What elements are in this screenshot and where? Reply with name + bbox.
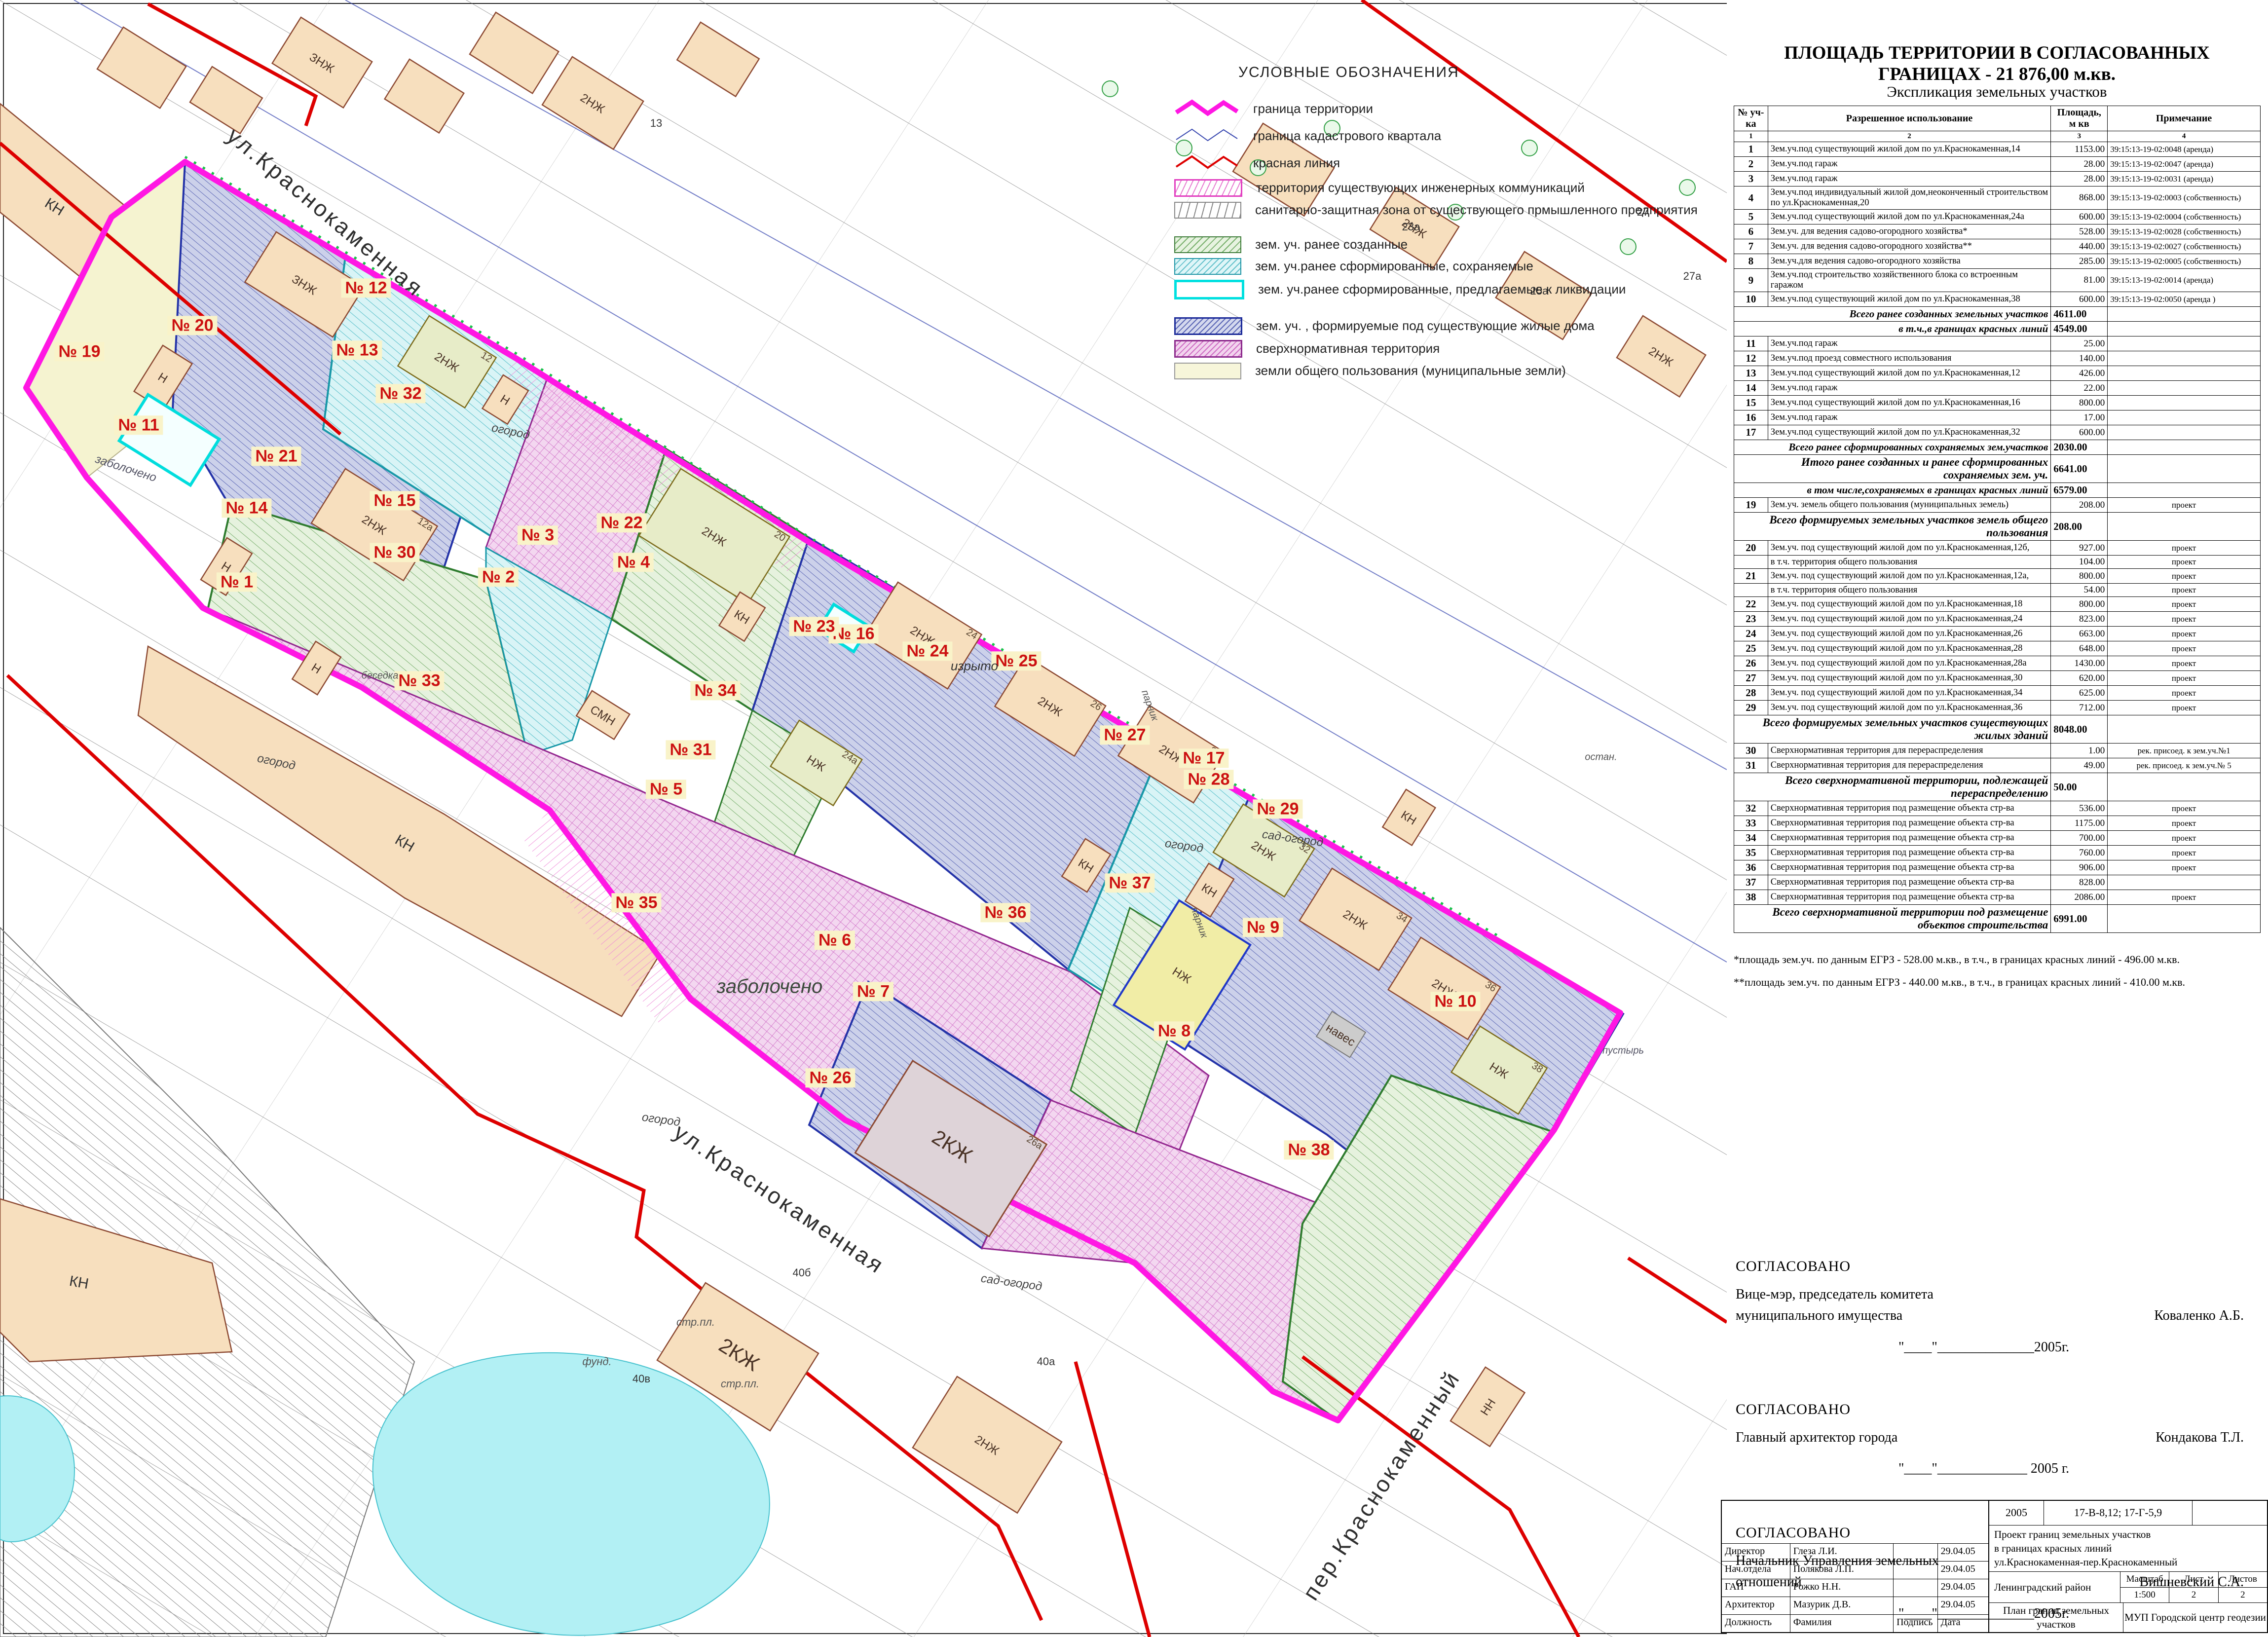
cell-area: 823.00 bbox=[2051, 612, 2108, 627]
legend-item: граница кадастрового квартала bbox=[1174, 125, 1742, 147]
cell-area: 700.00 bbox=[2051, 831, 2108, 846]
table-row: 37Сверхнормативная территория под размещ… bbox=[1734, 875, 2261, 890]
approval-stamp: СОГЛАСОВАНО bbox=[1736, 1401, 2259, 1418]
staff-name: Рожко Н.Н. bbox=[1790, 1579, 1894, 1597]
legend-item-label: зем. уч. ранее созданные bbox=[1255, 238, 1408, 251]
cell-area: 22.00 bbox=[2051, 381, 2108, 396]
cell-use: Зем.уч.под существующий жилой дом по ул.… bbox=[1768, 210, 2051, 224]
cell-use: Сверхнормативная территория для перерасп… bbox=[1768, 758, 2051, 773]
approval-role: Главный архитектор городаКондакова Т.Л. bbox=[1736, 1427, 2259, 1448]
col-header-note: Примечание bbox=[2108, 106, 2261, 131]
title-block-code: 17-В-8,12; 17-Г-5,9 bbox=[2044, 1501, 2193, 1525]
parcel-number-label: № 22 bbox=[596, 513, 646, 532]
cell-note: 39:15:13-19-02:0014 (аренда) bbox=[2108, 269, 2261, 292]
map-annotation: фунд. bbox=[582, 1355, 611, 1368]
staff-date: 29.04.05 bbox=[1938, 1597, 1988, 1614]
parcel-number-label: № 38 bbox=[1284, 1140, 1334, 1159]
table-row: 4Зем.уч.под индивидуальный жилой дом,нео… bbox=[1734, 186, 2261, 210]
cell-note: 39:15:13-19-02:0050 (аренда ) bbox=[2108, 292, 2261, 307]
yellow-swatch bbox=[1174, 363, 1241, 379]
cell-number: 27 bbox=[1734, 671, 1768, 686]
legend-item: красная линия bbox=[1174, 152, 1742, 174]
legend-item: зем. уч. , формируемые под существующие … bbox=[1174, 317, 1742, 335]
table-row: в т.ч. территория общего пользования104.… bbox=[1734, 556, 2261, 569]
cell-area: 28.00 bbox=[2051, 172, 2108, 186]
cell-note: проект bbox=[2108, 686, 2261, 701]
table-row: 35Сверхнормативная территория под размещ… bbox=[1734, 846, 2261, 860]
approval-block: СОГЛАСОВАНОВице-мэр, председатель комите… bbox=[1736, 1258, 2259, 1355]
map-annotation: изрыто bbox=[951, 659, 998, 674]
cell-summary-label: Всего формируемых земельных участков зем… bbox=[1734, 513, 2051, 541]
cell-note bbox=[2108, 396, 2261, 410]
cell-use: Зем.уч. под существующий жилой дом по ул… bbox=[1768, 612, 2051, 627]
approval-role: Вице-мэр, председатель комитета bbox=[1736, 1284, 2259, 1305]
cell-note: проект bbox=[2108, 846, 2261, 860]
cell-area: 426.00 bbox=[2051, 366, 2108, 381]
legend: УСЛОВНЫЕ ОБОЗНАЧЕНИЯ граница территорииг… bbox=[1174, 64, 1742, 384]
cell-number: 38 bbox=[1734, 890, 1768, 905]
liq-swatch bbox=[1174, 280, 1244, 299]
parcel-number-label: № 14 bbox=[222, 498, 271, 518]
legend-title: УСЛОВНЫЕ ОБОЗНАЧЕНИЯ bbox=[1238, 64, 1742, 81]
scale-value: 2 bbox=[2219, 1588, 2267, 1603]
parcel-number-label: № 19 bbox=[54, 342, 104, 361]
cell-note: проект bbox=[2108, 597, 2261, 612]
parcel-number-label: № 33 bbox=[394, 671, 444, 690]
cell-number: 25 bbox=[1734, 641, 1768, 656]
cell-note: проект bbox=[2108, 498, 2261, 513]
table-row: 24Зем.уч. под существующий жилой дом по … bbox=[1734, 627, 2261, 641]
staff-date: 29.04.05 bbox=[1938, 1579, 1988, 1597]
staff-name: Фамилия bbox=[1790, 1615, 1894, 1632]
legend-item-label: зем. уч.ранее сформированные, сохраняемы… bbox=[1255, 260, 1533, 273]
parcel-number-label: № 8 bbox=[1154, 1021, 1194, 1041]
cell-note bbox=[2108, 483, 2261, 498]
cell-use: Зем.уч.под существующий жилой дом по ул.… bbox=[1768, 142, 2051, 157]
legend-item-label: земли общего пользования (муниципальные … bbox=[1255, 364, 1566, 377]
table-row: 2Зем.уч.под гараж28.0039:15:13-19-02:004… bbox=[1734, 157, 2261, 172]
parcel-number-label: № 36 bbox=[980, 903, 1030, 922]
staff-role: Архитектор bbox=[1722, 1597, 1790, 1614]
staff-signature bbox=[1894, 1544, 1938, 1561]
cell-area: 620.00 bbox=[2051, 671, 2108, 686]
cell-area: 49.00 bbox=[2051, 758, 2108, 773]
map-annotation: беседка bbox=[362, 670, 399, 682]
explication-table: № уч-ка Разрешенное использование Площад… bbox=[1734, 106, 2261, 933]
parcel-number-label: № 29 bbox=[1253, 799, 1302, 818]
legend-item-label: сверхнормативная территория bbox=[1256, 342, 1440, 355]
scale-value: 1:500 bbox=[2120, 1588, 2169, 1603]
table-row: 9Зем.уч.под строительство хозяйственного… bbox=[1734, 269, 2261, 292]
cell-use: Зем.уч. под существующий жилой дом по ул… bbox=[1768, 569, 2051, 584]
cell-number: 1 bbox=[1734, 142, 1768, 157]
parcel-number-label: № 17 bbox=[1179, 748, 1228, 768]
title-block-district: Ленинградский район bbox=[1989, 1572, 2120, 1602]
cell-note: проект bbox=[2108, 584, 2261, 597]
parcel-number-label: № 1 bbox=[217, 572, 257, 592]
cell-number: 19 bbox=[1734, 498, 1768, 513]
cell-use: Зем.уч.под существующий жилой дом по ул.… bbox=[1768, 292, 2051, 307]
staff-role: Директор bbox=[1722, 1544, 1790, 1561]
cell-area: 906.00 bbox=[2051, 860, 2108, 875]
cell-area: 28.00 bbox=[2051, 157, 2108, 172]
gray-swatch bbox=[1174, 202, 1241, 219]
cell-use: Зем.уч. под существующий жилой дом по ул… bbox=[1768, 686, 2051, 701]
cell-summary-label: Всего сверхнормативной территории под ра… bbox=[1734, 905, 2051, 933]
cell-note: проект bbox=[2108, 541, 2261, 556]
map-annotation: 40б bbox=[792, 1266, 811, 1279]
table-row: Всего формируемых земельных участков сущ… bbox=[1734, 715, 2261, 744]
parcel-number-label: № 6 bbox=[815, 930, 855, 950]
table-row: в т.ч. территория общего пользования54.0… bbox=[1734, 584, 2261, 597]
cell-area: 2086.00 bbox=[2051, 890, 2108, 905]
approval-name: Коваленко А.Б. bbox=[2154, 1305, 2244, 1326]
cell-note: 39:15:13-19-02:0047 (аренда) bbox=[2108, 157, 2261, 172]
staff-signature bbox=[1894, 1597, 1938, 1614]
cell-number: 26 bbox=[1734, 656, 1768, 671]
colnum-1: 1 bbox=[1734, 131, 1768, 142]
map-annotation: стр.пл. bbox=[721, 1377, 759, 1390]
cell-area: 600.00 bbox=[2051, 292, 2108, 307]
cell-area: 1175.00 bbox=[2051, 816, 2108, 831]
staff-signature bbox=[1894, 1579, 1938, 1597]
table-row: 15Зем.уч.под существующий жилой дом по у… bbox=[1734, 396, 2261, 410]
staff-row: Нач.отделаПолякова Л.П.29.04.05 bbox=[1722, 1562, 1988, 1579]
cell-use: Зем.уч. под существующий жилой дом по ул… bbox=[1768, 627, 2051, 641]
cell-note bbox=[2108, 425, 2261, 440]
cell-use: Сверхнормативная территория под размещен… bbox=[1768, 875, 2051, 890]
cell-use: Зем.уч. земель общего пользования (муниц… bbox=[1768, 498, 2051, 513]
cell-area: 1430.00 bbox=[2051, 656, 2108, 671]
cell-use: Зем.уч.для ведения садово-огородного хоз… bbox=[1768, 254, 2051, 269]
table-row: 32Сверхнормативная территория под размещ… bbox=[1734, 801, 2261, 816]
map-annotation: 40в bbox=[632, 1373, 650, 1385]
title-block-plan-name: План границ земельных участков bbox=[1989, 1603, 2123, 1632]
cell-number: 32 bbox=[1734, 801, 1768, 816]
table-row: 11Зем.уч.под гараж25.00 bbox=[1734, 336, 2261, 351]
cell-area: 828.00 bbox=[2051, 875, 2108, 890]
cell-area: 760.00 bbox=[2051, 846, 2108, 860]
table-row: 20Зем.уч. под существующий жилой дом по … bbox=[1734, 541, 2261, 556]
title-block-project: Проект границ земельных участковв границ… bbox=[1989, 1525, 2267, 1572]
pinkcomm-swatch bbox=[1174, 179, 1242, 197]
table-row: Всего формируемых земельных участков зем… bbox=[1734, 513, 2261, 541]
staff-date: 29.04.05 bbox=[1938, 1544, 1988, 1561]
cell-number: 9 bbox=[1734, 269, 1768, 292]
parcel-number-label: № 25 bbox=[991, 651, 1041, 670]
scale-header: Листов bbox=[2219, 1572, 2267, 1587]
title-block-staff: ДиректорГлеза Л.И.29.04.05Нач.отделаПоля… bbox=[1722, 1501, 1989, 1632]
cell-number: 23 bbox=[1734, 612, 1768, 627]
cell-note: рек. присоед. к зем.уч.№1 bbox=[2108, 744, 2261, 758]
cell-note: 39:15:13-19-02:0003 (собственность) bbox=[2108, 186, 2261, 210]
cell-area: 208.00 bbox=[2051, 498, 2108, 513]
parcel-number-label: № 37 bbox=[1105, 873, 1154, 893]
cell-number: 35 bbox=[1734, 846, 1768, 860]
cell-note bbox=[2108, 336, 2261, 351]
cell-summary-value: 50.00 bbox=[2051, 773, 2108, 801]
table-row: 30Сверхнормативная территория для перера… bbox=[1734, 744, 2261, 758]
cell-note bbox=[2108, 322, 2261, 336]
legend-item-label: территория существующих инженерных комму… bbox=[1256, 181, 1585, 194]
cell-number: 22 bbox=[1734, 597, 1768, 612]
footnotes: *площадь зем.уч. по данным ЕГРЗ - 528.00… bbox=[1734, 948, 2262, 994]
table-row: Всего ранее сформированных сохраняемых з… bbox=[1734, 440, 2261, 455]
cell-area: 1.00 bbox=[2051, 744, 2108, 758]
cell-note bbox=[2108, 875, 2261, 890]
staff-name: Полякова Л.П. bbox=[1790, 1562, 1894, 1579]
cell-use: Зем.уч. под существующий жилой дом по ул… bbox=[1768, 656, 2051, 671]
cell-note: проект bbox=[2108, 641, 2261, 656]
table-row: 23Зем.уч. под существующий жилой дом по … bbox=[1734, 612, 2261, 627]
table-row: 13Зем.уч.под существующий жилой дом по у… bbox=[1734, 366, 2261, 381]
cell-note bbox=[2108, 410, 2261, 425]
staff-signature bbox=[1894, 1562, 1938, 1579]
table-row: 5Зем.уч.под существующий жилой дом по ул… bbox=[1734, 210, 2261, 224]
legend-item: зем. уч. ранее созданные bbox=[1174, 236, 1742, 253]
cell-use: Зем.уч. под существующий жилой дом по ул… bbox=[1768, 541, 2051, 556]
cell-number: 4 bbox=[1734, 186, 1768, 210]
table-row: 25Зем.уч. под существующий жилой дом по … bbox=[1734, 641, 2261, 656]
cell-note: проект bbox=[2108, 556, 2261, 569]
legend-item-label: красная линия bbox=[1253, 156, 1340, 170]
page-title: ПЛОЩАДЬ ТЕРРИТОРИИ В СОГЛАСОВАННЫХ ГРАНИ… bbox=[1732, 42, 2262, 85]
right-panel: ПЛОЩАДЬ ТЕРРИТОРИИ В СОГЛАСОВАННЫХ ГРАНИ… bbox=[1727, 0, 2268, 1637]
footnote: *площадь зем.уч. по данным ЕГРЗ - 528.00… bbox=[1734, 948, 2262, 971]
tree-icon bbox=[1102, 81, 1118, 97]
approval-stamp: СОГЛАСОВАНО bbox=[1736, 1258, 2259, 1275]
title-block-blank bbox=[1722, 1501, 1988, 1544]
cell-note: 39:15:13-19-02:0028 (собственность) bbox=[2108, 224, 2261, 239]
table-row: 10Зем.уч.под существующий жилой дом по у… bbox=[1734, 292, 2261, 307]
project-line: Проект границ земельных участков bbox=[1994, 1527, 2262, 1541]
scale-header: Масштаб bbox=[2120, 1572, 2169, 1587]
cell-use: Зем.уч.под существующий жилой дом по ул.… bbox=[1768, 425, 2051, 440]
table-row: 7Зем.уч. для ведения садово-огородного х… bbox=[1734, 239, 2261, 254]
cell-note bbox=[2108, 455, 2261, 483]
legend-item: зем. уч.ранее сформированные, предлагаем… bbox=[1174, 280, 1742, 299]
cell-number: 6 bbox=[1734, 224, 1768, 239]
table-row: 26Зем.уч. под существующий жилой дом по … bbox=[1734, 656, 2261, 671]
table-row: 29Зем.уч. под существующий жилой дом по … bbox=[1734, 701, 2261, 715]
parcel-number-label: № 21 bbox=[251, 446, 301, 466]
cell-note bbox=[2108, 351, 2261, 366]
parcel-number-label: № 15 bbox=[370, 491, 419, 510]
legend-item: зем. уч.ранее сформированные, сохраняемы… bbox=[1174, 258, 1742, 275]
cell-note bbox=[2108, 381, 2261, 396]
cell-use: Зем.уч.под гараж bbox=[1768, 172, 2051, 186]
cell-note: 39:15:13-19-02:0027 (собственность) bbox=[2108, 239, 2261, 254]
cell-use: Зем.уч.под существующий жилой дом по ул.… bbox=[1768, 366, 2051, 381]
parcel-number-label: № 13 bbox=[332, 340, 382, 360]
cell-area: 528.00 bbox=[2051, 224, 2108, 239]
cyan-swatch bbox=[1174, 258, 1241, 275]
cell-area: 927.00 bbox=[2051, 541, 2108, 556]
table-row: 31Сверхнормативная территория для перера… bbox=[1734, 758, 2261, 773]
cell-summary-value: 8048.00 bbox=[2051, 715, 2108, 744]
cell-note: проект bbox=[2108, 816, 2261, 831]
cell-use: Зем.уч. для ведения садово-огородного хо… bbox=[1768, 224, 2051, 239]
cell-number: 36 bbox=[1734, 860, 1768, 875]
staff-name: Мазурик Д.В. bbox=[1790, 1597, 1894, 1614]
cell-number: 2 bbox=[1734, 157, 1768, 172]
colnum-4: 4 bbox=[2108, 131, 2261, 142]
scale-header: Лист bbox=[2169, 1572, 2218, 1587]
table-header-row: № уч-ка Разрешенное использование Площад… bbox=[1734, 106, 2261, 131]
approval-date-line: "____"_____________ 2005 г. bbox=[1898, 1461, 2259, 1477]
cell-note bbox=[2108, 440, 2261, 455]
cell-note: проект bbox=[2108, 860, 2261, 875]
cell-area: 25.00 bbox=[2051, 336, 2108, 351]
zz-navy-swatch bbox=[1174, 125, 1239, 147]
cell-note: рек. присоед. к зем.уч.№ 5 bbox=[2108, 758, 2261, 773]
legend-line-items: граница территорииграница кадастрового к… bbox=[1174, 98, 1742, 219]
title-block-year: 2005 bbox=[1989, 1501, 2044, 1525]
cell-note: проект bbox=[2108, 701, 2261, 715]
table-row: 34Сверхнормативная территория под размещ… bbox=[1734, 831, 2261, 846]
map-annotation: 40а bbox=[1037, 1355, 1055, 1368]
cell-use: Зем.уч.под существующий жилой дом по ул.… bbox=[1768, 396, 2051, 410]
cell-note: проект bbox=[2108, 656, 2261, 671]
table-subtitle: Экспликация земельных участков bbox=[1732, 83, 2262, 101]
cell-summary-label: Итого ранее созданных и ранее сформирова… bbox=[1734, 455, 2051, 483]
parcel-number-label: № 30 bbox=[370, 543, 419, 562]
cell-area: 536.00 bbox=[2051, 801, 2108, 816]
cell-use: Сверхнормативная территория под размещен… bbox=[1768, 846, 2051, 860]
map-annotation: остан. bbox=[1585, 752, 1617, 763]
legend-item-label: зем. уч. , формируемые под существующие … bbox=[1256, 319, 1595, 333]
staff-row: АрхитекторМазурик Д.В.29.04.05 bbox=[1722, 1597, 1988, 1615]
approval-name: Кондакова Т.Л. bbox=[2156, 1427, 2244, 1448]
staff-name: Глеза Л.И. bbox=[1790, 1544, 1894, 1561]
cell-summary-label: Всего ранее созданных земельных участков bbox=[1734, 307, 2051, 322]
cell-number: 29 bbox=[1734, 701, 1768, 715]
cell-note: 39:15:13-19-02:0005 (собственность) bbox=[2108, 254, 2261, 269]
parcel-number-label: № 3 bbox=[518, 525, 558, 545]
cell-area: 1153.00 bbox=[2051, 142, 2108, 157]
table-row: 21Зем.уч. под существующий жилой дом по … bbox=[1734, 569, 2261, 584]
table-row: 12Зем.уч.под проезд совместного использо… bbox=[1734, 351, 2261, 366]
table-row: 22Зем.уч. под существующий жилой дом по … bbox=[1734, 597, 2261, 612]
parcel-number-label: № 2 bbox=[478, 567, 519, 587]
title-block: ДиректорГлеза Л.И.29.04.05Нач.отделаПоля… bbox=[1721, 1500, 2268, 1633]
parcel-number-label: № 7 bbox=[853, 982, 893, 1001]
cell-note: проект bbox=[2108, 801, 2261, 816]
cell-note: 39:15:13-19-02:0048 (аренда) bbox=[2108, 142, 2261, 157]
cell-number: 7 bbox=[1734, 239, 1768, 254]
parcel-number-label: № 12 bbox=[341, 278, 391, 298]
parcel-number-label: № 9 bbox=[1243, 918, 1283, 937]
cell-area: 800.00 bbox=[2051, 569, 2108, 584]
map-annotation: 13 bbox=[650, 117, 662, 130]
cell-number: 13 bbox=[1734, 366, 1768, 381]
table-row: 38Сверхнормативная территория под размещ… bbox=[1734, 890, 2261, 905]
cell-note bbox=[2108, 366, 2261, 381]
cell-number: 30 bbox=[1734, 744, 1768, 758]
zz-magenta-swatch bbox=[1174, 98, 1239, 120]
cell-note bbox=[2108, 715, 2261, 744]
cell-note: 39:15:13-19-02:0004 (собственность) bbox=[2108, 210, 2261, 224]
blue-swatch bbox=[1174, 317, 1242, 335]
col-header-area: Площадь, м кв bbox=[2051, 106, 2108, 131]
map-annotation: пустырь bbox=[1602, 1045, 1644, 1057]
cell-area: 81.00 bbox=[2051, 269, 2108, 292]
table-row: 1Зем.уч.под существующий жилой дом по ул… bbox=[1734, 142, 2261, 157]
title-block-scale: МасштабЛистЛистов 1:50022 bbox=[2120, 1572, 2267, 1602]
legend-item: сверхнормативная территория bbox=[1174, 340, 1742, 358]
table-row: 28Зем.уч. под существующий жилой дом по … bbox=[1734, 686, 2261, 701]
staff-role: ГАП bbox=[1722, 1579, 1790, 1597]
cell-area: 663.00 bbox=[2051, 627, 2108, 641]
cell-area: 712.00 bbox=[2051, 701, 2108, 715]
table-row: 27Зем.уч. под существующий жилой дом по … bbox=[1734, 671, 2261, 686]
legend-item: территория существующих инженерных комму… bbox=[1174, 179, 1742, 197]
parcel-number-label: № 20 bbox=[167, 316, 217, 335]
cell-use: Зем.уч.под гараж bbox=[1768, 336, 2051, 351]
legend-item: санитарно-защитная зона от существующего… bbox=[1174, 202, 1742, 219]
legend-item-label: граница кадастрового квартала bbox=[1253, 129, 1441, 143]
footnote: **площадь зем.уч. по данным ЕГРЗ - 440.0… bbox=[1734, 971, 2262, 994]
cell-area: 648.00 bbox=[2051, 641, 2108, 656]
cell-use: Зем.уч.под гараж bbox=[1768, 410, 2051, 425]
cell-summary-value: 2030.00 bbox=[2051, 440, 2108, 455]
project-line: в границах красных линий bbox=[1994, 1541, 2262, 1555]
legend-area-items-a: зем. уч. ранее созданныезем. уч.ранее сф… bbox=[1174, 236, 1742, 299]
cell-summary-value: 6991.00 bbox=[2051, 905, 2108, 933]
staff-row: ДиректорГлеза Л.И.29.04.05 bbox=[1722, 1544, 1988, 1562]
cell-use: Зем.уч.под гараж bbox=[1768, 157, 2051, 172]
cell-note bbox=[2108, 513, 2261, 541]
parcel-number-label: № 4 bbox=[613, 553, 654, 572]
parcel-number-label: № 23 bbox=[789, 617, 839, 636]
staff-signature: Подпись bbox=[1894, 1615, 1938, 1632]
parcel-number-label: № 26 bbox=[805, 1068, 855, 1087]
cell-use: Зем.уч.под проезд совместного использова… bbox=[1768, 351, 2051, 366]
table-row: 8Зем.уч.для ведения садово-огородного хо… bbox=[1734, 254, 2261, 269]
cell-summary-label: Всего сверхнормативной территории, подле… bbox=[1734, 773, 2051, 801]
cell-area: 17.00 bbox=[2051, 410, 2108, 425]
parcel-number-label: № 31 bbox=[666, 740, 715, 759]
staff-role: Нач.отдела bbox=[1722, 1562, 1790, 1579]
cell-number bbox=[1734, 556, 1768, 569]
cell-area: 600.00 bbox=[2051, 210, 2108, 224]
cell-note bbox=[2108, 773, 2261, 801]
cell-use: Зем.уч. под существующий жилой дом по ул… bbox=[1768, 671, 2051, 686]
cell-summary-label: Всего формируемых земельных участков сущ… bbox=[1734, 715, 2051, 744]
cell-note bbox=[2108, 307, 2261, 322]
approval-role: муниципального имуществаКоваленко А.Б. bbox=[1736, 1305, 2259, 1326]
parcel-number-label: № 10 bbox=[1430, 992, 1480, 1011]
cell-summary-label: Всего ранее сформированных сохраняемых з… bbox=[1734, 440, 2051, 455]
cell-number: 17 bbox=[1734, 425, 1768, 440]
pink-swatch bbox=[1174, 340, 1242, 358]
cell-use: в т.ч. территория общего пользования bbox=[1768, 584, 2051, 597]
zz-red-swatch bbox=[1174, 152, 1239, 174]
cell-summary-value: 208.00 bbox=[2051, 513, 2108, 541]
cell-number: 31 bbox=[1734, 758, 1768, 773]
table-row: 19Зем.уч. земель общего пользования (мун… bbox=[1734, 498, 2261, 513]
cell-number: 5 bbox=[1734, 210, 1768, 224]
cell-number: 28 bbox=[1734, 686, 1768, 701]
table-row: 6Зем.уч. для ведения садово-огородного х… bbox=[1734, 224, 2261, 239]
title-block-organization: МУП Городской центр геодезии bbox=[2123, 1603, 2267, 1632]
cell-use: Сверхнормативная территория для перерасп… bbox=[1768, 744, 2051, 758]
colnum-2: 2 bbox=[1768, 131, 2051, 142]
cell-area: 140.00 bbox=[2051, 351, 2108, 366]
cell-area: 868.00 bbox=[2051, 186, 2108, 210]
staff-role: Должность bbox=[1722, 1615, 1790, 1632]
staff-row: ГАПРожко Н.Н.29.04.05 bbox=[1722, 1579, 1988, 1597]
